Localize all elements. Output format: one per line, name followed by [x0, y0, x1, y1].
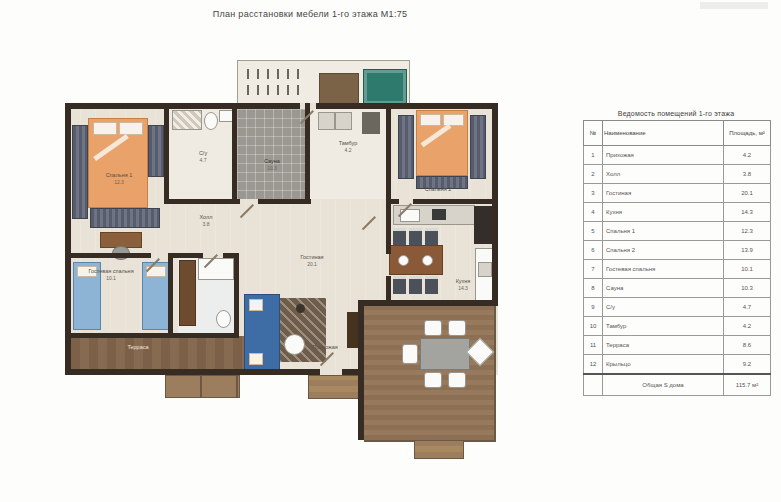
schedule-row: 10Тамбур4.2	[584, 317, 771, 336]
watermark	[700, 2, 768, 9]
room-label-guest-bedroom: Гостевая спальня 10.1	[80, 268, 142, 281]
sink	[219, 110, 233, 122]
wall	[316, 103, 498, 109]
room-name: Кухня	[438, 278, 488, 285]
washing-machine	[335, 112, 352, 130]
dining-chair	[425, 276, 438, 294]
page-title: План расстановки мебели 1-го этажа М1:75	[150, 9, 470, 19]
schedule-row: 2Холл3.8	[584, 165, 771, 184]
room-area: 4.2	[724, 146, 771, 165]
dining-chair	[425, 228, 438, 246]
terrace-table	[420, 338, 470, 370]
wall	[232, 103, 237, 204]
room-area: 12.3	[84, 179, 154, 185]
terrace-chair	[424, 320, 442, 336]
schedule-total-row: Общая S дома 115.7 м²	[584, 374, 771, 396]
room-name: Гостевая спальня	[80, 268, 142, 275]
terrace-chair	[424, 372, 442, 388]
washing-machine	[318, 112, 335, 130]
sauna-floor	[237, 109, 305, 199]
dining-chair	[393, 276, 406, 294]
room-label-bedroom1: Спальня 1 12.3	[84, 172, 154, 185]
room-name: Прихожая	[298, 344, 352, 351]
row-number: 7	[584, 260, 603, 279]
room-area: 20.1	[282, 261, 342, 267]
room-area: 20.1	[724, 184, 771, 203]
room-area: 9.2	[724, 355, 771, 375]
boiler	[362, 112, 380, 134]
left-steps	[165, 375, 240, 398]
bath-cabinet	[179, 260, 196, 326]
wall	[65, 369, 320, 375]
row-number: 9	[584, 298, 603, 317]
tv-unit	[347, 312, 358, 348]
room-area: 14.3	[438, 285, 488, 291]
schedule-row: 6Спальня 213.9	[584, 241, 771, 260]
wardrobe-hatched	[172, 110, 202, 130]
back-patio	[237, 60, 410, 107]
hot-tub	[363, 69, 407, 105]
wall	[391, 199, 399, 204]
toilet	[216, 310, 231, 328]
room-name: Терраса	[603, 336, 724, 355]
fridge	[474, 206, 493, 244]
wall	[358, 300, 498, 306]
schedule-header-row: № Наименование Площадь, м²	[584, 121, 771, 146]
room-name: Прихожая	[603, 146, 724, 165]
room-name: Крыльцо	[603, 355, 724, 375]
screenshot-canvas: План расстановки мебели 1-го этажа М1:75	[0, 0, 781, 502]
row-number: 1	[584, 146, 603, 165]
col-header-area: Площадь, м²	[724, 121, 771, 146]
wall	[168, 253, 173, 338]
row-number: 3	[584, 184, 603, 203]
porch	[308, 375, 360, 399]
room-label-wc: С/у 4.7	[176, 150, 230, 163]
room-area: 4.2	[724, 317, 771, 336]
schedule-row: 3Гостиная20.1	[584, 184, 771, 203]
total-label: Общая S дома	[603, 374, 724, 396]
guest-bed	[142, 262, 170, 330]
room-area: 10.1	[724, 260, 771, 279]
row-number: 8	[584, 279, 603, 298]
col-header-number: №	[584, 121, 603, 146]
room-name: Сауна	[244, 158, 300, 165]
wall	[65, 103, 242, 109]
room-name: Гостиная	[603, 184, 724, 203]
schedule-row: 4Кухня14.3	[584, 203, 771, 222]
bedroom1-bed	[88, 118, 148, 208]
schedule-row: 8Сауна10.3	[584, 279, 771, 298]
room-name: Терраса	[98, 344, 178, 351]
room-name: Спальня 1	[603, 222, 724, 241]
bedroom2-wardrobe	[398, 115, 414, 179]
row-number: 5	[584, 222, 603, 241]
schedule-row: 11Терраса8.6	[584, 336, 771, 355]
bedroom1-bench	[90, 208, 160, 228]
room-area: 4.7	[176, 157, 230, 163]
room-name: Спальня 2	[406, 186, 470, 193]
room-area: 3.8	[184, 221, 228, 227]
wall	[71, 253, 151, 258]
room-label-entry: Прихожая	[298, 344, 352, 351]
wall	[242, 103, 300, 109]
room-area: 8.6	[724, 336, 771, 355]
room-name: С/у	[603, 298, 724, 317]
room-area: 12.3	[724, 222, 771, 241]
wall	[413, 199, 498, 204]
room-label-kitchen: Кухня 14.3	[438, 278, 488, 291]
wall	[173, 333, 238, 338]
outdoor-table	[319, 73, 359, 105]
room-area: 4.7	[724, 298, 771, 317]
bedroom1-wardrobe	[148, 125, 164, 177]
wall	[386, 103, 391, 204]
legend-rows: 1Прихожая4.22Холл3.83Гостиная20.14Кухня1…	[584, 146, 771, 375]
pergola-lines	[247, 85, 301, 95]
row-number: 4	[584, 203, 603, 222]
wall	[71, 333, 173, 338]
wall	[342, 369, 358, 375]
dining-chair	[409, 228, 422, 246]
room-name: Сауна	[603, 279, 724, 298]
room-name: Тамбур	[603, 317, 724, 336]
sofa	[244, 294, 280, 370]
room-area: 10.3	[724, 279, 771, 298]
shower	[198, 258, 234, 280]
room-name: Гостиная	[282, 254, 342, 261]
terrace-chair	[448, 320, 466, 336]
wall	[386, 199, 391, 254]
wall	[386, 276, 391, 306]
dining-chair	[409, 276, 422, 294]
room-name: Спальня 1	[84, 172, 154, 179]
room-area: 13.9	[724, 241, 771, 260]
room-label-tambour: Тамбур 4.2	[318, 140, 378, 153]
schedule-row: 5Спальня 112.3	[584, 222, 771, 241]
schedule-row: 7Гостевая спальня10.1	[584, 260, 771, 279]
room-name: Тамбур	[318, 140, 378, 147]
room-area: 14.3	[724, 203, 771, 222]
room-name: Кухня	[603, 203, 724, 222]
room-label-terrace: Терраса	[98, 344, 178, 351]
terrace-chair	[402, 344, 418, 364]
room-name: Спальня 2	[603, 241, 724, 260]
schedule-row: 12Крыльцо9.2	[584, 355, 771, 375]
row-number: 6	[584, 241, 603, 260]
schedule-table: № Наименование Площадь, м² 1Прихожая4.22…	[583, 120, 771, 396]
room-area: 4.2	[318, 147, 378, 153]
left-terrace-floor	[71, 336, 246, 369]
bedroom2-wardrobe	[470, 115, 486, 179]
schedule-row: 1Прихожая4.2	[584, 146, 771, 165]
room-area: 10.3	[244, 165, 300, 171]
room-label-bedroom2: Спальня 2	[406, 186, 470, 193]
toilet	[204, 112, 218, 130]
room-name: Холл	[184, 214, 228, 221]
room-name: Гостевая спальня	[603, 260, 724, 279]
wall	[234, 253, 239, 338]
wall	[492, 103, 498, 306]
wall	[164, 199, 240, 204]
room-schedule: Ведомость помещений 1-го этажа № Наимено…	[583, 110, 769, 396]
pergola-lines	[247, 69, 301, 79]
col-header-name: Наименование	[603, 121, 724, 146]
row-number: 11	[584, 336, 603, 355]
terrace-steps	[414, 440, 464, 459]
wall	[223, 253, 239, 258]
row-number: 2	[584, 165, 603, 184]
room-name: Холл	[603, 165, 724, 184]
decor	[296, 304, 305, 313]
wall	[258, 199, 311, 204]
room-label-sauna: Сауна 10.3	[244, 158, 300, 171]
row-number: 12	[584, 355, 603, 375]
wall	[173, 253, 203, 258]
terrace-chair	[448, 372, 466, 388]
room-area: 3.8	[724, 165, 771, 184]
room-area: 10.1	[80, 275, 142, 281]
schedule-title: Ведомость помещений 1-го этажа	[583, 110, 769, 120]
schedule-row: 9С/у4.7	[584, 298, 771, 317]
room-name: С/у	[176, 150, 230, 157]
wall	[358, 300, 364, 440]
row-number: 10	[584, 317, 603, 336]
bedroom2-bed	[416, 110, 468, 176]
dining-chair	[393, 228, 406, 246]
total-value: 115.7 м²	[724, 374, 771, 396]
room-label-hall: Холл 3.8	[184, 214, 228, 227]
room-label-living: Гостиная 20.1	[282, 254, 342, 267]
total-number-cell	[584, 374, 603, 396]
wall	[164, 103, 169, 204]
dining-table	[389, 245, 443, 275]
